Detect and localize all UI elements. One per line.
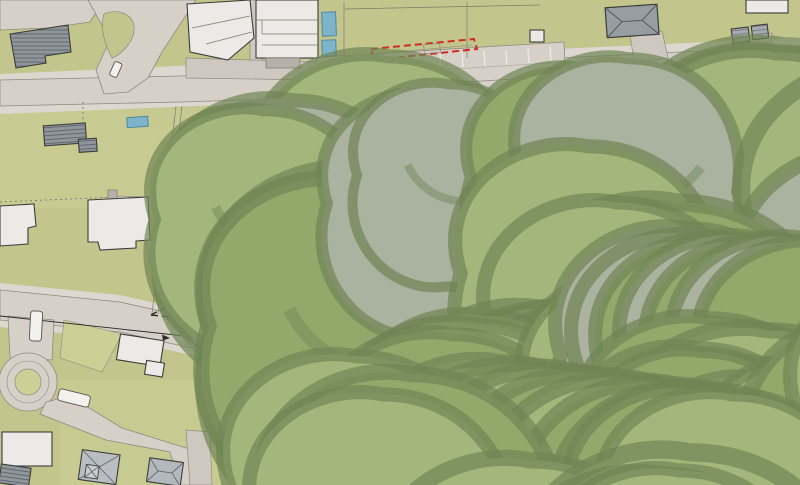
roundabout-island: [15, 369, 41, 395]
trees: [149, 38, 800, 485]
swimming-pool: [322, 12, 337, 36]
hip-roof-house-south: [146, 458, 183, 485]
building-north-2: [256, 0, 318, 68]
building-west-2: [88, 190, 150, 250]
hip-roof-villa: [605, 4, 659, 38]
small-building: [530, 30, 544, 42]
site-plan-canvas: Architectural site plan: [0, 0, 800, 485]
building-ne-corner: [746, 0, 788, 13]
church-building: [78, 450, 120, 485]
swimming-pool: [127, 116, 149, 127]
site-plan-svg: Architectural site plan: [0, 0, 800, 485]
bus: [29, 311, 43, 342]
